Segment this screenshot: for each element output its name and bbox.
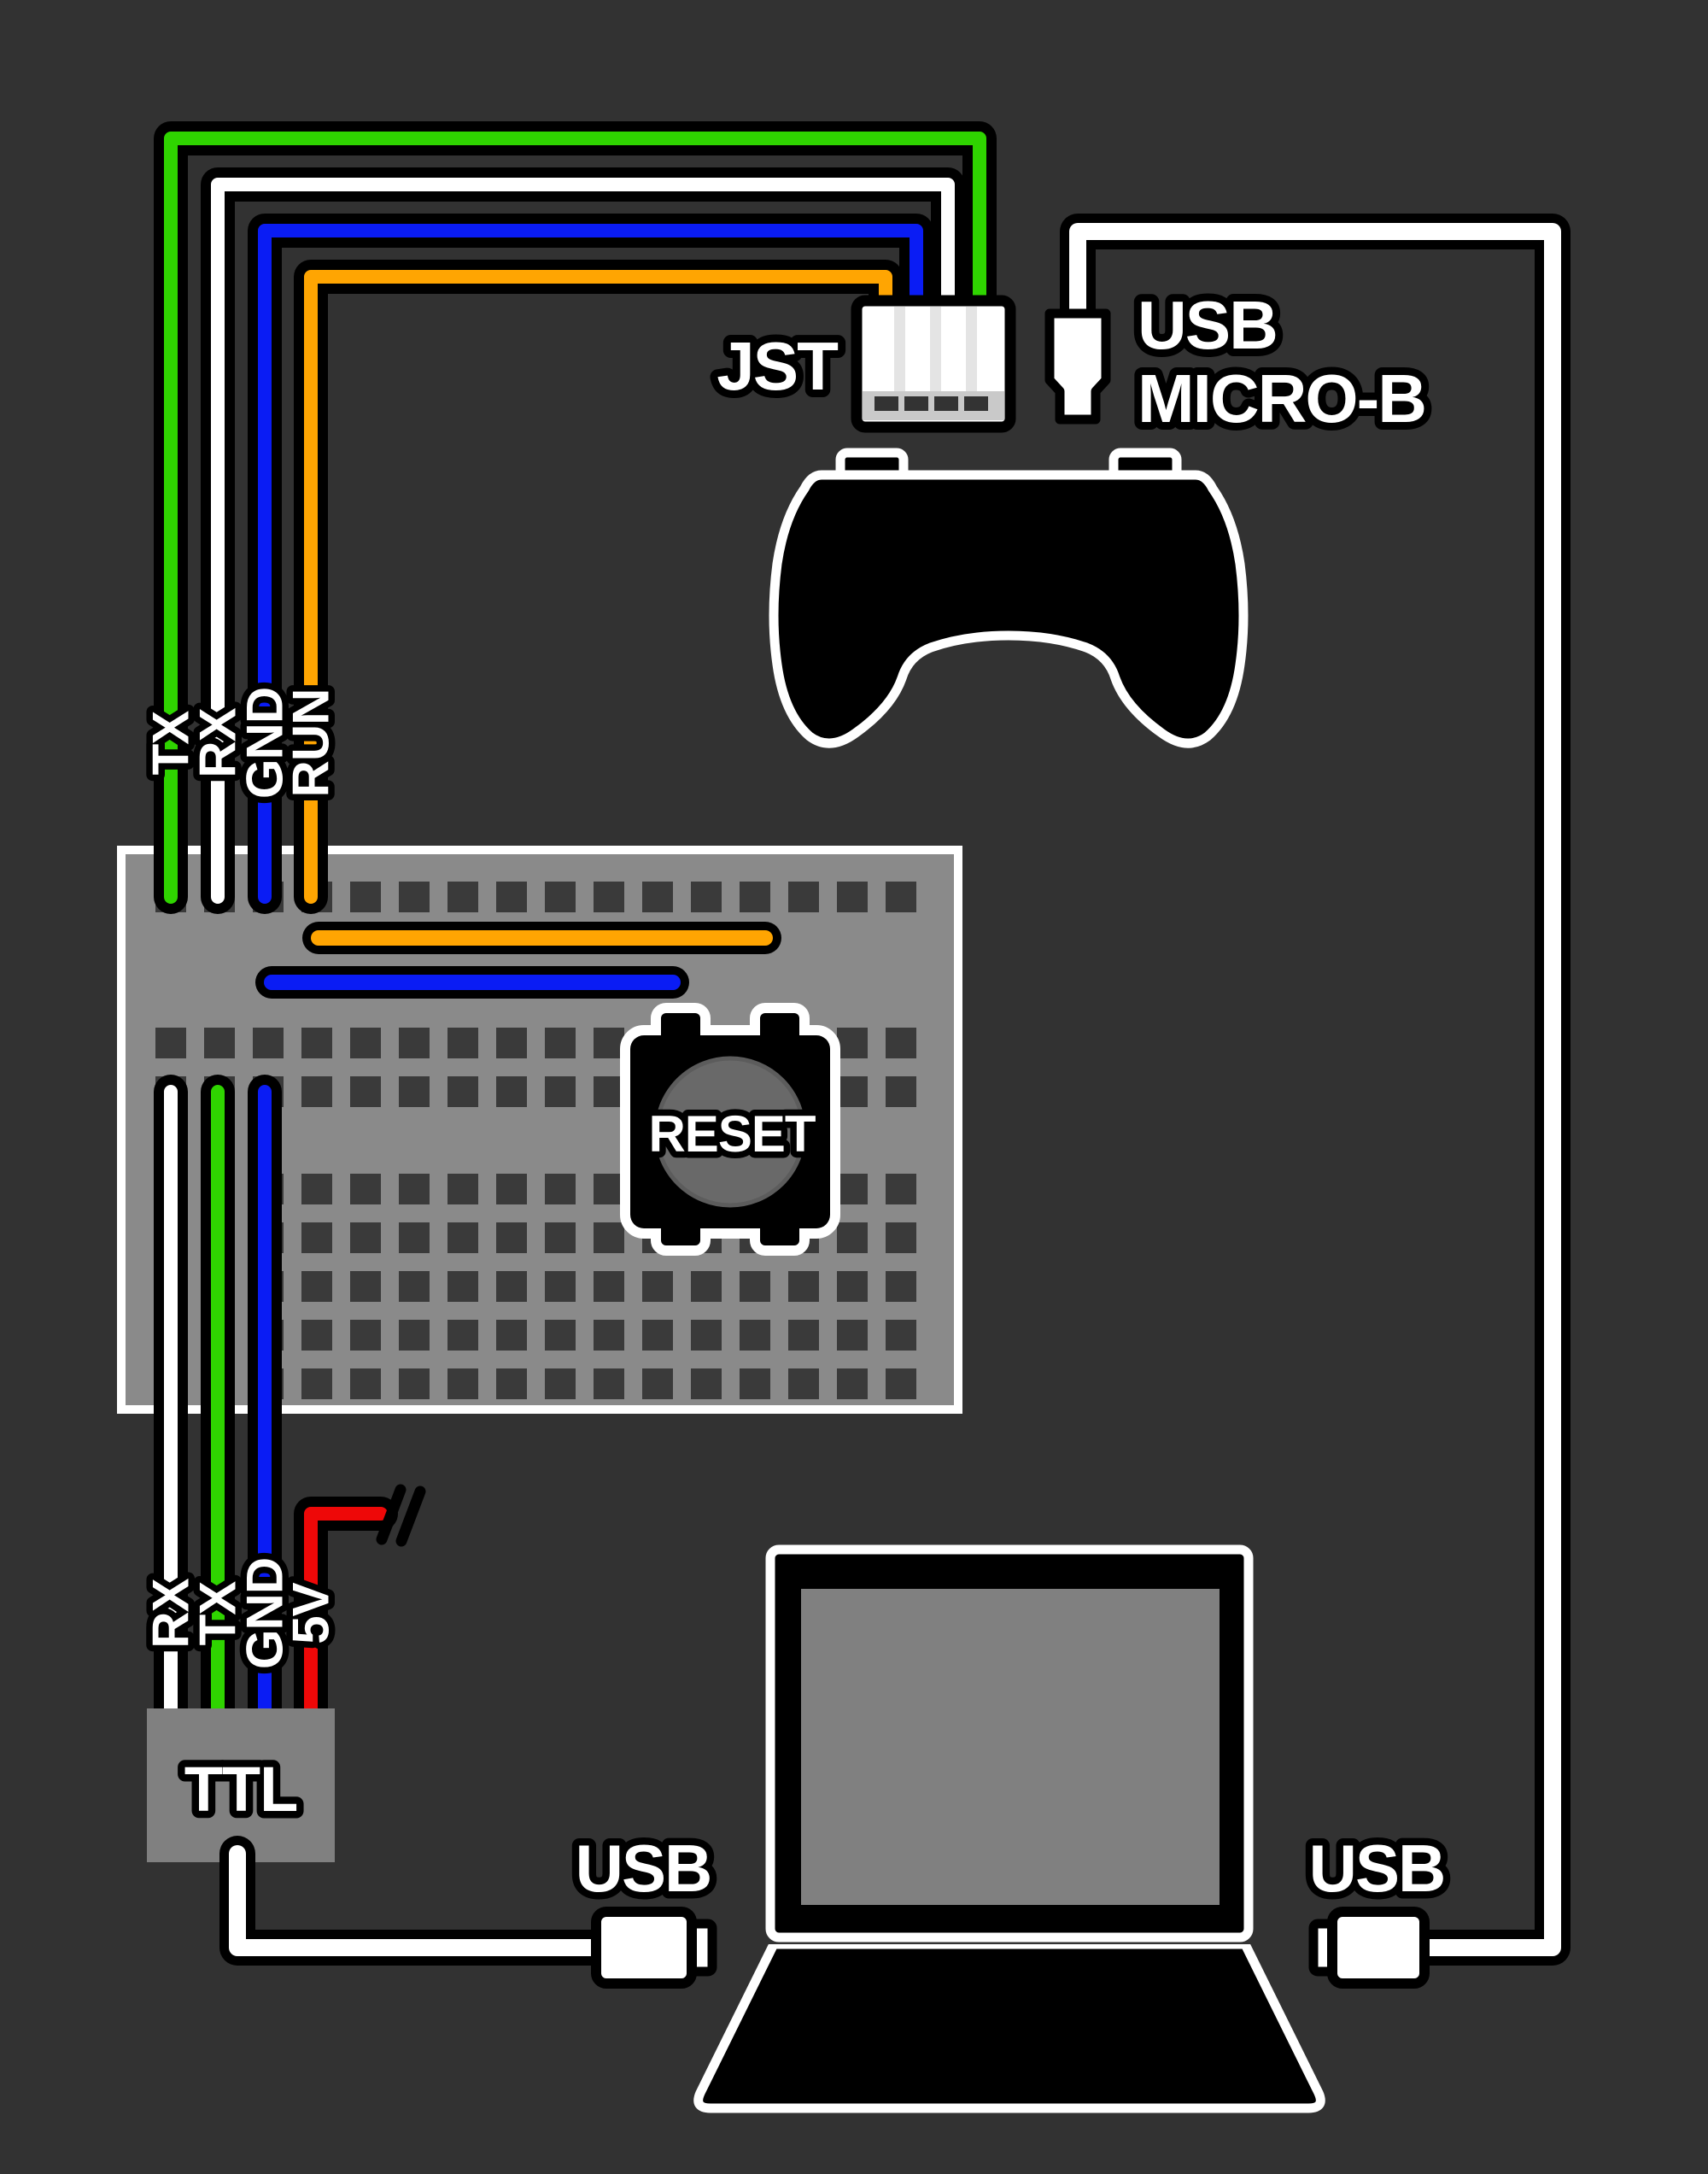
usb-micro-label-line1: USB [1138, 287, 1277, 363]
pin-label-run: RUN [283, 689, 340, 798]
pin-label-5v-bottom: 5V [283, 1582, 340, 1644]
reset-button: RESET [630, 1013, 830, 1245]
usb-micro-plug [1050, 314, 1106, 419]
usb-plug-left [596, 1912, 712, 1984]
jst-connector [857, 301, 1010, 427]
reset-label: RESET [648, 1105, 815, 1163]
laptop-base [699, 1944, 1321, 2108]
laptop [699, 1550, 1321, 2108]
usb-left-label: USB [576, 1831, 711, 1906]
ttl-label: TTL [184, 1754, 298, 1825]
usb-micro-label-line2: MICRO-B [1138, 360, 1425, 437]
usb-right-label: USB [1309, 1831, 1445, 1906]
usb-plug-right [1313, 1912, 1424, 1984]
wiring-diagram: RESET TTL [0, 0, 1708, 2174]
jst-label: JST [717, 328, 839, 404]
laptop-screen [801, 1589, 1220, 1905]
